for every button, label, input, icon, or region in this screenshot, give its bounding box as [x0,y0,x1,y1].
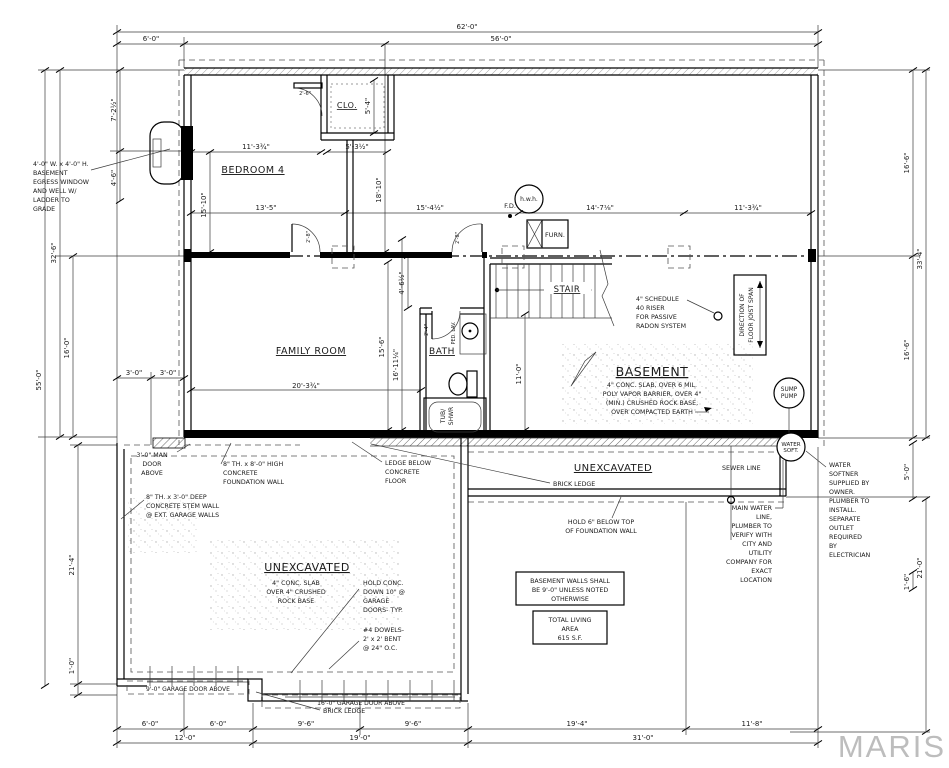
svg-text:DIRECTION OF: DIRECTION OF [739,293,746,337]
svg-text:@ EXT. GARAGE WALLS: @ EXT. GARAGE WALLS [146,511,219,519]
svg-text:OUTLET: OUTLET [829,525,854,532]
dim-l-55-0: 55'-0" [35,369,43,390]
furnace-label: FURN. [545,231,565,239]
basement-walls-note: BASEMENT WALLS SHALL BE 9'-0" UNLESS NOT… [530,578,610,603]
garage-door-9-label: 9'-0" GARAGE DOOR ABOVE [146,686,230,693]
dim-l-3-0a: 3'-0" [126,369,143,377]
svg-text:OVER COMPACTED EARTH: OVER COMPACTED EARTH [611,409,693,416]
walls [184,68,818,502]
room-label-stair: STAIR [554,285,581,295]
dim-l-1-0: 1'-0" [68,658,76,675]
svg-text:OTHERWISE: OTHERWISE [551,596,589,603]
svg-text:3'-0" MAN: 3'-0" MAN [136,452,168,459]
dowels-note: #4 DOWELS- 2' x 2' BENT @ 24" O.C. [363,627,404,652]
dim-r-21-0: 21'-0" [916,557,924,578]
svg-text:4" CONC. SLAB, OVER 6 MIL.: 4" CONC. SLAB, OVER 6 MIL. [607,382,697,389]
radon-riser-circle [714,312,722,320]
toilet-tank [467,371,477,397]
svg-text:LEDGE BELOW: LEDGE BELOW [385,460,432,467]
lav-label: PED. LAV. [451,322,457,345]
egress-window [91,122,193,184]
dim-v-18-10: 18'-10" [375,177,383,202]
ledge-below-note: LEDGE BELOW CONCRETE FLOOR [385,460,432,485]
dim-l-4-6: 4'-6" [110,170,118,187]
svg-text:CITY AND: CITY AND [742,541,772,548]
basement-floor-plan: BEDROOM 4 CLO. FAMILY ROOM BATH STAIR BA… [0,0,949,768]
dim-row-13-5: 13'-5" [255,204,276,212]
dim-row-15-4: 15'-4½" [416,204,444,212]
joist-direction-note: DIRECTION OF FLOOR JOIST SPAN [739,287,755,342]
svg-text:4" CONC. SLAB: 4" CONC. SLAB [272,580,320,587]
dim-door-2-6: 2'-6" [299,91,311,97]
brick-ledge-garage-label: BRICK LEDGE [323,708,365,715]
svg-text:HOLD CONC.: HOLD CONC. [363,580,404,587]
svg-text:VERIFY WITH: VERIFY WITH [731,532,772,539]
svg-text:BY: BY [829,543,837,550]
dim-closet-w: 5'-3½" [345,143,368,151]
svg-text:POLY VAPOR BARRIER, OVER 4": POLY VAPOR BARRIER, OVER 4" [603,391,702,398]
sump-pump-circle [774,378,804,408]
closet-door-leaf [294,83,322,88]
svg-text:8" TH. x 3'-0" DEEP: 8" TH. x 3'-0" DEEP [146,494,207,501]
dim-b-12: 12'-0" [174,734,195,742]
svg-text:SOFTNER: SOFTNER [829,471,859,478]
svg-text:RADON SYSTEM: RADON SYSTEM [636,323,686,330]
dim-v-15-6: 15'-6" [378,336,386,357]
dim-b-6b: 6'-0" [210,720,227,728]
svg-text:INSTALL.: INSTALL. [829,507,856,514]
svg-text:DOOR: DOOR [142,461,162,468]
svg-text:DOWN 10" @: DOWN 10" @ [363,588,405,596]
room-label-bath: BATH [429,347,455,357]
svg-text:OF FOUNDATION WALL: OF FOUNDATION WALL [565,528,637,535]
svg-text:OVER 4" CRUSHED: OVER 4" CRUSHED [266,589,326,596]
maris-watermark: MARIS [838,729,946,764]
svg-text:BE 9'-0" UNLESS NOTED: BE 9'-0" UNLESS NOTED [532,587,609,594]
svg-text:40 RISER: 40 RISER [636,305,665,312]
svg-text:LADDER TO: LADDER TO [33,197,70,204]
svg-text:MAIN WATER: MAIN WATER [732,505,773,512]
dim-l-16-0: 16'-0" [63,337,71,358]
svg-text:4'-0" W. x 4'-0" H.: 4'-0" W. x 4'-0" H. [33,161,89,168]
floor-drain-label: F.D. [504,202,516,210]
room-label-unexcavated-garage: UNEXCAVATED [264,561,350,574]
dim-l-32-6: 32'-6" [50,242,58,263]
svg-text:SHWR: SHWR [448,407,455,425]
svg-text:LINE,: LINE, [756,514,772,521]
dim-b-6a: 6'-0" [142,720,159,728]
dim-b-11-8: 11'-8" [741,720,762,728]
svg-text:GARAGE: GARAGE [363,598,389,605]
dim-b-31: 31'-0" [632,734,653,742]
svg-text:AND WELL W/: AND WELL W/ [33,188,77,195]
dim-row-11-3: 11'-3¾" [734,204,762,212]
dim-row-14-7: 14'-7⅛" [586,204,614,212]
svg-text:615 S.F.: 615 S.F. [558,635,583,642]
vanity [460,314,486,354]
sump-label: SUMP [781,387,798,393]
room-label-bedroom: BEDROOM 4 [221,165,284,176]
svg-text:EXACT: EXACT [751,568,772,575]
dim-l-7-2: 7'-2½" [110,98,118,121]
svg-text:TOTAL LIVING: TOTAL LIVING [547,617,591,624]
dim-l-3-0b: 3'-0" [160,369,177,377]
toilet-bowl [449,373,467,395]
foundation-wall-note: 8" TH. x 8'-0" HIGH CONCRETE FOUNDATION … [223,461,285,486]
svg-text:GRADE: GRADE [33,206,55,213]
garage-door-16-label: 16'-0" GARAGE DOOR ABOVE [317,700,405,707]
room-label-family: FAMILY ROOM [276,346,346,357]
main-water-note: MAIN WATER LINE, PLUMBER TO VERIFY WITH … [726,505,773,584]
svg-text:SUPPLIED BY: SUPPLIED BY [829,480,869,487]
svg-text:OWNER.: OWNER. [829,489,855,496]
floor-plan-svg: BEDROOM 4 CLO. FAMILY ROOM BATH STAIR BA… [0,0,949,768]
svg-text:AREA: AREA [562,626,580,633]
dim-v-4-6: 4'-6½" [398,271,406,294]
svg-text:REQUIRED: REQUIRED [829,534,862,541]
room-label-unexcavated-strip: UNEXCAVATED [574,463,652,474]
dim-door-2-8a: 2'-8" [306,231,312,243]
svg-text:ROCK BASE: ROCK BASE [278,598,314,605]
dim-r-1-6: 1'-6" [903,574,911,591]
svg-text:WATER: WATER [829,462,852,469]
stem-wall-note: 8" TH. x 3'-0" DEEP CONCRETE STEM WALL @… [146,494,220,519]
svg-text:#4 DOWELS-: #4 DOWELS- [363,627,404,634]
dim-v-11-0: 11'-0" [515,363,523,384]
svg-text:UTILITY: UTILITY [749,550,773,557]
svg-text:ELECTRICIAN: ELECTRICIAN [829,552,871,559]
svg-text:@ 24" O.C.: @ 24" O.C. [363,644,397,652]
svg-text:BASEMENT: BASEMENT [33,170,68,177]
svg-text:PLUMBER TO: PLUMBER TO [829,498,870,505]
dim-main56: 56'-0" [490,35,511,43]
dim-b-9a: 9'-6" [298,720,315,728]
dim-door-2-4: 2'-4" [424,324,430,336]
svg-text:2' x 2' BENT: 2' x 2' BENT [363,636,401,643]
svg-text:EGRESS WINDOW: EGRESS WINDOW [33,179,90,186]
dim-fam-w: 20'-3¾" [292,382,320,390]
sewer-line-label: SEWER LINE [722,465,761,472]
svg-text:SEPARATE: SEPARATE [829,516,860,523]
svg-text:DOORS- TYP.: DOORS- TYP. [363,607,403,614]
main-water-line [775,460,783,508]
dim-b-9b: 9'-6" [405,720,422,728]
svg-text:HOLD 6" BELOW TOP: HOLD 6" BELOW TOP [568,519,635,526]
dim-r-5-0: 5'-0" [903,464,911,481]
egress-note: 4'-0" W. x 4'-0" H. BASEMENT EGRESS WIND… [33,161,90,213]
dim-closet-d: 5'-4" [364,98,372,115]
svg-text:SOFT.: SOFT. [783,448,799,454]
svg-text:FLOOR: FLOOR [385,478,407,485]
svg-text:4" SCHEDULE: 4" SCHEDULE [636,296,679,303]
svg-text:CONCRETE STEM WALL: CONCRETE STEM WALL [146,503,220,510]
water-heater-label: h.w.h. [520,196,538,203]
svg-text:COMPANY FOR: COMPANY FOR [726,559,773,566]
svg-text:PUMP: PUMP [781,394,798,400]
dim-b-19: 19'-0" [349,734,370,742]
room-label-basement: BASEMENT [616,364,689,379]
svg-text:CONCRETE: CONCRETE [385,469,420,476]
svg-text:FLOOR JOIST SPAN: FLOOR JOIST SPAN [748,287,755,342]
dim-v-16-11: 16'-11¼" [392,349,400,381]
hold6-note: HOLD 6" BELOW TOP OF FOUNDATION WALL [565,519,637,535]
softener-note: WATER SOFTNER SUPPLIED BY OWNER. PLUMBER… [829,462,871,559]
living-area-note: TOTAL LIVING AREA 615 S.F. [547,617,591,642]
svg-text:FOR PASSIVE: FOR PASSIVE [636,314,677,321]
dim-bed-h: 15'-10" [200,192,208,217]
man-door-opening [153,438,185,448]
svg-text:ABOVE: ABOVE [141,470,163,477]
dim-bed-top: 11'-3¾" [242,143,270,151]
room-label-closet: CLO. [337,101,357,110]
svg-text:(MIN.) CRUSHED ROCK BASE,: (MIN.) CRUSHED ROCK BASE, [606,400,698,407]
dim-r-16-6a: 16'-6" [903,152,911,173]
man-door-note: 3'-0" MAN DOOR ABOVE [136,452,168,477]
radon-note: 4" SCHEDULE 40 RISER FOR PASSIVE RADON S… [636,296,686,330]
svg-text:FOUNDATION WALL: FOUNDATION WALL [223,479,285,486]
dim-r-16-6b: 16'-6" [903,339,911,360]
dim-overall: 62'-0" [456,23,477,31]
tub-label: TUB/ [440,408,447,424]
svg-text:LOCATION: LOCATION [740,577,772,584]
dim-l-21-4: 21'-4" [68,554,76,575]
dim-offset6: 6'-0" [143,35,160,43]
dim-door-2-8b: 2'-8" [455,232,461,244]
svg-text:PLUMBER TO: PLUMBER TO [731,523,772,530]
dim-r-33-4: 33'-4" [916,248,924,269]
dim-b-19-4: 19'-4" [566,720,587,728]
svg-text:BASEMENT WALLS SHALL: BASEMENT WALLS SHALL [530,578,610,585]
svg-text:8" TH. x 8'-0" HIGH: 8" TH. x 8'-0" HIGH [223,461,283,468]
svg-text:CONCRETE: CONCRETE [223,470,258,477]
brick-ledge-strip-label: BRICK LEDGE [553,481,595,488]
floor-drain-dot [508,214,512,218]
